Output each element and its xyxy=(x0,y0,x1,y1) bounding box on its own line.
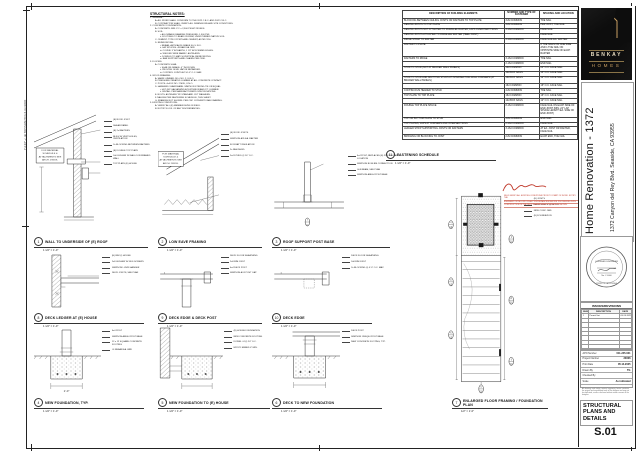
callout-label: 2x8 RIM JOIST xyxy=(342,261,390,264)
callout-label: SIMPSON AC4 POST CAP xyxy=(221,272,264,275)
margin-tick xyxy=(319,3,320,9)
schedule-col-fastener: NUMBER AND TYPE OF FASTENER xyxy=(504,11,539,19)
callout-label: DECK FLOOR SHEATHING xyxy=(342,255,390,258)
detail-drawing: 4S.018S.015S.01 9S.0110S.016S.01 5S.01 xyxy=(444,186,523,394)
detail-title-new-foundation-typ: 4NEW FOUNDATION, TYP.1 1/2" = 1'-0" xyxy=(34,398,144,413)
fastening-schedule-title: 11 FASTENING SCHEDULE 1 1/2" = 1'-0" xyxy=(386,150,496,165)
callout-label: BLKG W/ VENT HOLES, VENTILATION xyxy=(104,136,152,141)
callout-label: SIMPSON A35 EA. RAFTER xyxy=(221,138,264,141)
callout-label: 2x6 LEDGER W/ BALLOON FRAMED WALL xyxy=(104,155,152,160)
callout-label: SIMPSON ABU44 POST BASE xyxy=(102,336,150,339)
revisions-box: ISSUES/REVISIONS NUM DESCRIPTION DATE 1P… xyxy=(580,302,633,350)
detail-number-bubble: 7 xyxy=(452,398,461,407)
callout-label: 2x BLOCKING @ 4'-0" O.C. MAX xyxy=(342,267,390,270)
svg-text:FOR MATERIAL: FOR MATERIAL xyxy=(162,153,180,156)
note-line: B. NOTIFY E.O.R. OF ANY DISCREPANCIES. xyxy=(150,108,322,111)
detail-callouts: DECK FLOOR SHEATHING2x8 RIM JOIST2x BLOC… xyxy=(342,255,390,269)
svg-text:S.01: S.01 xyxy=(480,391,483,393)
callout-label: SIMPSON BC46 BM CONNECTION xyxy=(348,163,400,166)
vertical-dimension-label: 7'-2 3/4" +/- (E) TOP PLATE TO U.S. (E) … xyxy=(24,70,27,150)
detail-title-roof-support-post-base: 3ROOF SUPPORT POST BASE1 1/2" = 1'-0" xyxy=(272,237,390,252)
detail-drawing: FOR MATERIALSCHEDULE &ATTACHMENTS SEEARC… xyxy=(158,126,219,234)
detail-drawing xyxy=(34,252,101,310)
margin-tick xyxy=(22,226,29,227)
detail-drawing xyxy=(158,326,223,394)
callout-label: DECK POST xyxy=(342,330,390,333)
callout-label: (E) FOUNDATION xyxy=(524,215,580,218)
detail-callouts: (E) ROOF JOISTSHEAR PANEL(E) 2x RAFTERSB… xyxy=(104,119,152,165)
svg-text:S.01: S.01 xyxy=(450,227,453,229)
engineer-stamp: LICENSED ENGINEER No. C 0000 STATE OF CA… xyxy=(580,236,633,302)
detail-callouts: DECK FLOOR SHEATHING2x8 RIM JOIST4x4 DEC… xyxy=(221,255,264,274)
stamp-text-name: LICENSED ENGINEER xyxy=(581,261,632,263)
detail-drawing xyxy=(272,326,340,394)
detail-enlarged-floor-framing-foundation-plan: 4S.018S.015S.01 9S.0110S.016S.01 5S.01(E… xyxy=(444,186,580,394)
copyright-disclaimer: All drawings and written material appear… xyxy=(582,388,629,397)
callout-label: (E) ROOF JOISTS xyxy=(221,132,264,135)
callout-label: SIMPSON CBSQ44 POST BASE xyxy=(342,336,390,339)
plan-check-signature xyxy=(500,180,548,194)
callout-label: EPOXY EMBED 4" MIN. xyxy=(224,347,270,350)
detail-title-deck-to-new-foundation: 6DECK TO NEW FOUNDATION1 1/2" = 1'-0" xyxy=(272,398,382,413)
detail-roof-support-post-base: 7S.014x4 POST, REPLACES (E) POST IN SAME… xyxy=(272,150,400,234)
stamp-text-number: No. C 0000 xyxy=(581,275,632,277)
detail-number-bubble: 9 xyxy=(158,313,167,322)
detail-drawing xyxy=(272,252,340,310)
detail-number-bubble: 6 xyxy=(272,398,281,407)
callout-label: SHEAR PANEL xyxy=(104,125,152,128)
callout-label: 2x8 LEDGER W/ SDS SCREWS xyxy=(102,261,150,264)
callout-label: (E) HOUSE FOUNDATION xyxy=(224,330,270,333)
stamp-text-state: STATE OF CALIFORNIA xyxy=(581,283,632,285)
fastening-schedule-body: BLOCKING BETWEEN CEILING JOISTS OR RAFTE… xyxy=(403,18,578,139)
svg-text:ATTACHMENTS SEE: ATTACHMENTS SEE xyxy=(160,159,183,162)
firm-logo: BENKAY HOMES xyxy=(581,8,632,80)
detail-title-new-foundation-to-e-house: 5NEW FOUNDATION TO (E) HOUSE1 1/2" = 1'-… xyxy=(158,398,270,413)
callout-label: (E) DOUBLE TOP PLATE xyxy=(104,150,152,153)
detail-callouts: (E) ROOF JOISTSSIMPSON A35 EA. RAFTERR-1… xyxy=(221,132,264,157)
callout-label: NEW CONCRETE FOOTING xyxy=(224,336,270,339)
callout-label: (E) ROOF JOIST xyxy=(104,119,152,122)
svg-text:S.01: S.01 xyxy=(510,241,513,243)
plan-check-notes: FIELD VERIFY ALL EXISTING CONDITIONS PRI… xyxy=(504,195,578,208)
sheet-number: S.01 xyxy=(580,426,631,438)
detail-number-bubble: 5 xyxy=(158,398,167,407)
titleblock-fields: APN Number011-245-021Project Number23006… xyxy=(580,350,633,388)
detail-new-foundation-to-e-house: (E) HOUSE FOUNDATIONNEW CONCRETE FOOTING… xyxy=(158,326,270,394)
titleblock-field-row: ScaleAs indicated xyxy=(581,379,632,385)
callout-label: 2x8 RIM JOIST xyxy=(221,261,264,264)
sheet-number-box: S.01 xyxy=(580,426,631,439)
callout-label: TOP PLATE (E) HOUSE xyxy=(104,163,152,166)
schedule-row: RAFTER TO PLATE2 TOE NAILS ON ONE SIDE A… xyxy=(403,43,578,56)
svg-text:S.01: S.01 xyxy=(510,302,513,304)
detail-deck-edge: DECK FLOOR SHEATHING2x8 RIM JOIST2x BLOC… xyxy=(272,252,390,310)
detail-drawing: 7S.01 xyxy=(272,150,346,234)
detail-callouts: (E) RIM @ HOUSE2x8 LEDGER W/ SDS SCREWSS… xyxy=(102,255,150,274)
structural-notes-heading: STRUCTURAL NOTES: xyxy=(150,12,322,16)
svg-text:FOR MATERIAL: FOR MATERIAL xyxy=(41,149,59,152)
detail-wall-to-underside-of-e-roof: FOR MATERIALSCHEDULE &ATTACHMENTS SEEARC… xyxy=(34,112,152,234)
detail-title-low-eave-framing: 2LOW EAVE FRAMING1 1/2" = 1'-0" xyxy=(158,237,262,252)
drawing-sheet: STRUCTURAL NOTES: 1. GENERAL:A. ALL WORK… xyxy=(0,0,640,453)
callout-label: 4x4 POST, REPLACES (E) POST IN SAME LOCA… xyxy=(348,155,400,160)
svg-text:SCHEDULE &: SCHEDULE & xyxy=(163,157,178,159)
callout-label: NEW CONCRETE FOOTING, TYP. xyxy=(342,341,390,344)
callout-label: NEW CONC. PAD xyxy=(524,210,580,213)
svg-text:SCHEDULE &: SCHEDULE & xyxy=(43,153,58,155)
callout-label: 12 x 12 SQUARE CONCRETE FOOTING xyxy=(102,341,150,346)
revisions-body: 1Permit Set05.24.2025 xyxy=(582,314,632,349)
svg-text:ARCH. DWGS.: ARCH. DWGS. xyxy=(42,159,58,162)
sheet-title-box: STRUCTURAL PLANS AND DETAILS xyxy=(580,400,633,426)
detail-callouts: (E) HOUSE FOUNDATIONNEW CONCRETE FOOTING… xyxy=(224,330,270,349)
logo-text-homes: HOMES xyxy=(581,63,632,68)
detail-title-enlarged-floor-framing-foundation-plan: 7ENLARGED FLOOR FRAMING / FOUNDATION PLA… xyxy=(452,398,548,413)
schedule-row: DOUBLE TOP PLATE SPLICE8-16d COMMONFACE … xyxy=(403,104,578,117)
callout-label: 4x4 DECK POST xyxy=(221,267,264,270)
project-title: Home Renovation - 1372 xyxy=(584,86,596,234)
svg-text:S.01: S.01 xyxy=(450,284,453,286)
plan-check-note-line: CONSTRUCTION OF THE DECK FRAMING AND FOU… xyxy=(504,204,578,207)
margin-tick xyxy=(31,3,32,10)
margin-tick xyxy=(319,445,320,451)
sheet-title: STRUCTURAL PLANS AND DETAILS xyxy=(581,401,632,424)
callout-label: GLB BEAM, SEE PLAN xyxy=(348,169,400,172)
svg-text:S.01: S.01 xyxy=(450,337,453,339)
callout-label: DECK FLOOR SHEATHING xyxy=(221,255,264,258)
detail-number-bubble: 2 xyxy=(158,237,167,246)
revision-row xyxy=(582,345,632,349)
detail-title-wall-to-underside-of-e-roof: 1WALL TO UNDERSIDE OF (E) ROOF1 1/2" = 1… xyxy=(34,237,148,252)
callout-label: DECK JOISTS, SEE PLAN xyxy=(102,272,150,275)
schedule-row: LEDGER STRIP SUPPORTING JOISTS OR RAFTER… xyxy=(403,127,578,135)
callout-label: 4x4 POST xyxy=(102,330,150,333)
structural-notes: STRUCTURAL NOTES: 1. GENERAL:A. ALL WORK… xyxy=(150,12,322,138)
callout-label: #4 REBAR EA. WAY xyxy=(102,349,150,352)
schedule-col-description: DESCRIPTION OF BUILDING ELEMENTS xyxy=(403,11,505,19)
callout-label: 2x BLOCKING BETWEEN RAFTERS xyxy=(104,144,152,147)
callout-label: (E) RIM @ HOUSE xyxy=(102,255,150,258)
svg-text:ATTACHMENTS SEE: ATTACHMENTS SEE xyxy=(39,155,62,158)
detail-deck-ledger-at-e-house: (E) RIM @ HOUSE2x8 LEDGER W/ SDS SCREWSS… xyxy=(34,252,150,310)
detail-number-bubble: 10 xyxy=(272,313,281,322)
svg-text:1'-0": 1'-0" xyxy=(64,389,70,393)
svg-text:S.01: S.01 xyxy=(510,364,513,366)
project-address: 1372 Canyon del Rey Blvd. Seaside, CA 93… xyxy=(610,92,618,232)
detail-callouts: DECK POSTSIMPSON CBSQ44 POST BASENEW CON… xyxy=(342,330,390,344)
schedule-row: STUD TO STUD AND ABUTTING STUDS AT INTER… xyxy=(403,76,578,84)
callout-label: 2x4 STUDS @ 16" O.C. xyxy=(221,155,264,158)
detail-deck-to-new-foundation: DECK POSTSIMPSON CBSQ44 POST BASENEW CON… xyxy=(272,326,390,394)
margin-tick xyxy=(23,10,30,11)
callout-label: SIMPSON ABU44 POST BASE xyxy=(348,174,400,177)
logo-text-benkay: BENKAY xyxy=(581,52,632,58)
detail-drawing: FOR MATERIALSCHEDULE &ATTACHMENTS SEEARC… xyxy=(34,112,102,234)
callout-label: 2x FASCIA BD. xyxy=(221,149,264,152)
margin-tick xyxy=(31,444,32,451)
detail-drawing: 1'-0" xyxy=(34,326,101,394)
detail-number-bubble: 8 xyxy=(34,313,43,322)
detail-callouts: 4x4 POSTSIMPSON ABU44 POST BASE12 x 12 S… xyxy=(102,330,150,352)
callout-label: SIMPSON LUS28 HANGER xyxy=(102,267,150,270)
structural-notes-lines: 1. GENERAL:A. ALL WORK SHALL CONFORM TO … xyxy=(150,17,322,111)
callout-label: R-19 BATT INSULATION xyxy=(221,144,264,147)
detail-drawing xyxy=(158,252,219,310)
detail-low-eave-framing: FOR MATERIALSCHEDULE &ATTACHMENTS SEEARC… xyxy=(158,126,264,234)
schedule-col-spacing: SPACING AND LOCATION xyxy=(539,11,578,19)
callout-label: DOWEL #4 @ 24" O.C. xyxy=(224,341,270,344)
detail-new-foundation-typ: 1'-0"4x4 POSTSIMPSON ABU44 POST BASE12 x… xyxy=(34,326,150,394)
detail-deck-edge-deck-post: DECK FLOOR SHEATHING2x8 RIM JOIST4x4 DEC… xyxy=(158,252,264,310)
fastening-schedule: DESCRIPTION OF BUILDING ELEMENTS NUMBER … xyxy=(402,10,578,160)
detail-number-bubble: 3 xyxy=(272,237,281,246)
callout-label: (E) 2x RAFTERS xyxy=(104,130,152,133)
svg-text:S.01: S.01 xyxy=(306,224,309,226)
detail-callouts: 4x4 POST, REPLACES (E) POST IN SAME LOCA… xyxy=(348,155,400,177)
svg-text:ARCH. DWGS.: ARCH. DWGS. xyxy=(163,162,179,165)
schedule-row: BRIDGING OR BLOCKING TO JOIST2-8d COMMON… xyxy=(403,135,578,140)
detail-number-bubble: 4 xyxy=(34,398,43,407)
detail-number-bubble: 1 xyxy=(34,237,43,246)
